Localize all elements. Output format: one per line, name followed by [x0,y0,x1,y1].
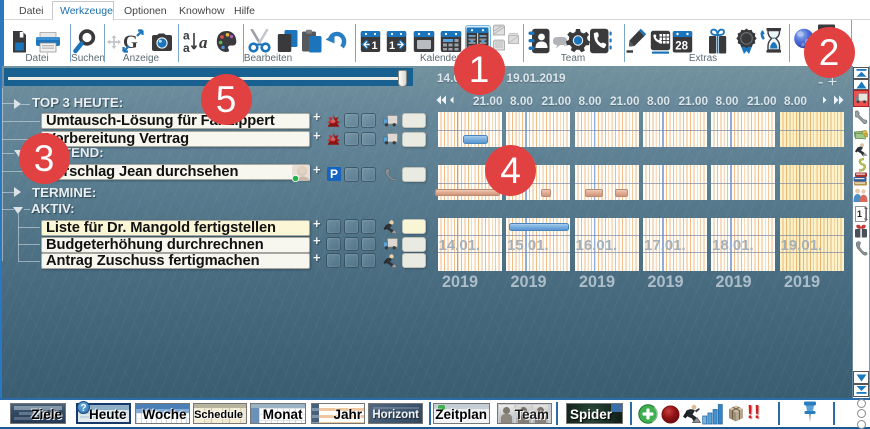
svg-text:a: a [183,41,190,53]
svg-text:1: 1 [372,40,378,52]
svg-text:1: 1 [389,40,395,52]
svg-text:28: 28 [675,40,688,52]
svg-text:1: 1 [857,209,862,219]
svg-text:a: a [199,33,208,52]
